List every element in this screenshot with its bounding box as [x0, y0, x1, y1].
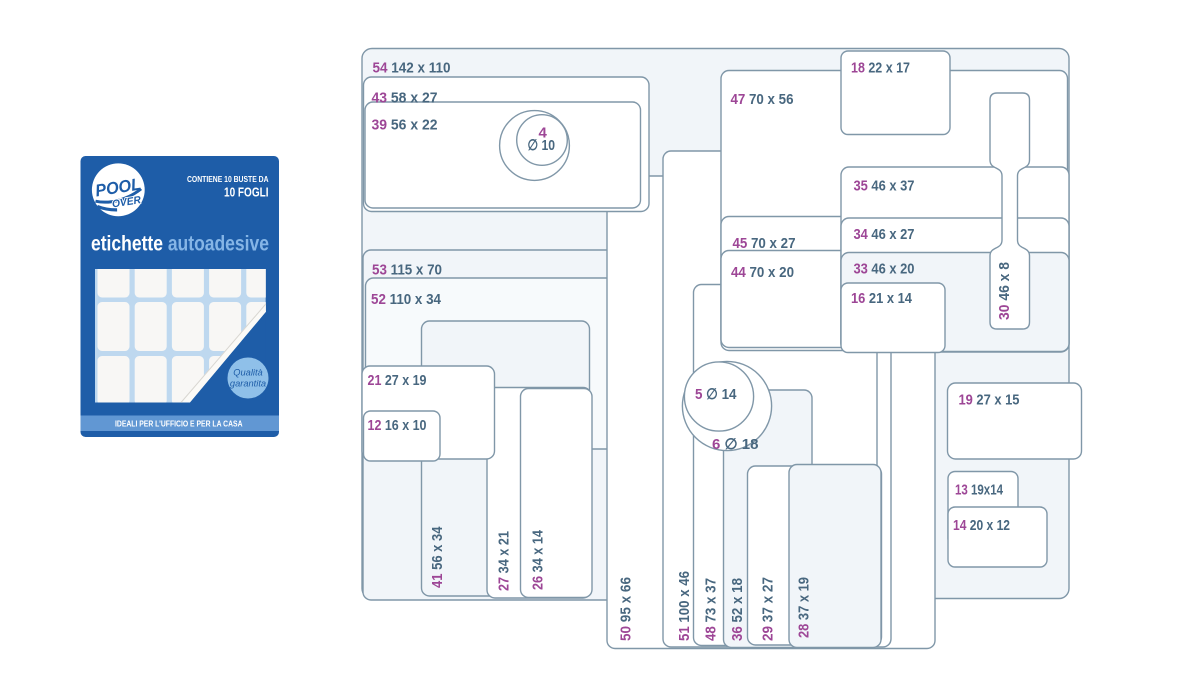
svg-text:14 20 x 12: 14 20 x 12 [953, 517, 1010, 534]
svg-text:∅ 10: ∅ 10 [528, 137, 556, 154]
svg-text:41 56 x 34: 41 56 x 34 [429, 526, 446, 588]
svg-text:43 58 x 27: 43 58 x 27 [372, 90, 438, 107]
svg-text:34 46 x 27: 34 46 x 27 [854, 226, 915, 243]
svg-text:28 37 x 19: 28 37 x 19 [796, 577, 813, 638]
svg-text:33 46 x 20: 33 46 x 20 [854, 261, 915, 278]
svg-text:53 115 x 70: 53 115 x 70 [372, 262, 442, 279]
svg-text:50 95 x 66: 50 95 x 66 [618, 577, 635, 641]
svg-text:19 27 x 15: 19 27 x 15 [959, 392, 1020, 409]
svg-text:29 37 x 27: 29 37 x 27 [760, 577, 777, 641]
svg-text:12 16 x 10: 12 16 x 10 [368, 417, 427, 434]
svg-text:36 52 x 18: 36 52 x 18 [729, 578, 746, 641]
svg-text:47 70 x 56: 47 70 x 56 [731, 91, 794, 108]
svg-text:13 19x14: 13 19x14 [955, 482, 1003, 499]
svg-text:IDEALI PER L’UFFICIO E PER LA: IDEALI PER L’UFFICIO E PER LA CASA [115, 419, 243, 429]
svg-text:52 110 x 34: 52 110 x 34 [371, 291, 442, 308]
svg-text:30 46 x 8: 30 46 x 8 [996, 262, 1013, 320]
svg-text:6 ∅ 18: 6 ∅ 18 [712, 436, 759, 453]
svg-text:21 27 x 19: 21 27 x 19 [368, 372, 427, 389]
svg-text:18 22 x 17: 18 22 x 17 [851, 60, 910, 77]
svg-text:16 21 x 14: 16 21 x 14 [851, 290, 913, 307]
svg-text:27 34 x 21: 27 34 x 21 [496, 531, 513, 591]
svg-text:garantita: garantita [230, 379, 266, 389]
svg-text:CONTIENE 10 BUSTE DA: CONTIENE 10 BUSTE DA [187, 174, 269, 184]
svg-text:10 FOGLI: 10 FOGLI [224, 185, 269, 200]
svg-text:44 70 x 20: 44 70 x 20 [731, 264, 794, 281]
svg-text:35 46 x 37: 35 46 x 37 [854, 178, 915, 195]
svg-text:45 70 x 27: 45 70 x 27 [733, 235, 796, 252]
svg-text:39 56 x 22: 39 56 x 22 [372, 117, 438, 134]
svg-text:Qualità: Qualità [233, 368, 262, 378]
svg-text:48 73 x 37: 48 73 x 37 [703, 578, 720, 641]
svg-text:etichette autoadesive: etichette autoadesive [91, 233, 269, 256]
svg-text:54 142 x 110: 54 142 x 110 [373, 60, 451, 77]
svg-text:5 ∅ 14: 5 ∅ 14 [695, 386, 737, 403]
svg-text:26 34 x 14: 26 34 x 14 [530, 529, 547, 590]
svg-text:51 100 x 46: 51 100 x 46 [676, 571, 693, 641]
